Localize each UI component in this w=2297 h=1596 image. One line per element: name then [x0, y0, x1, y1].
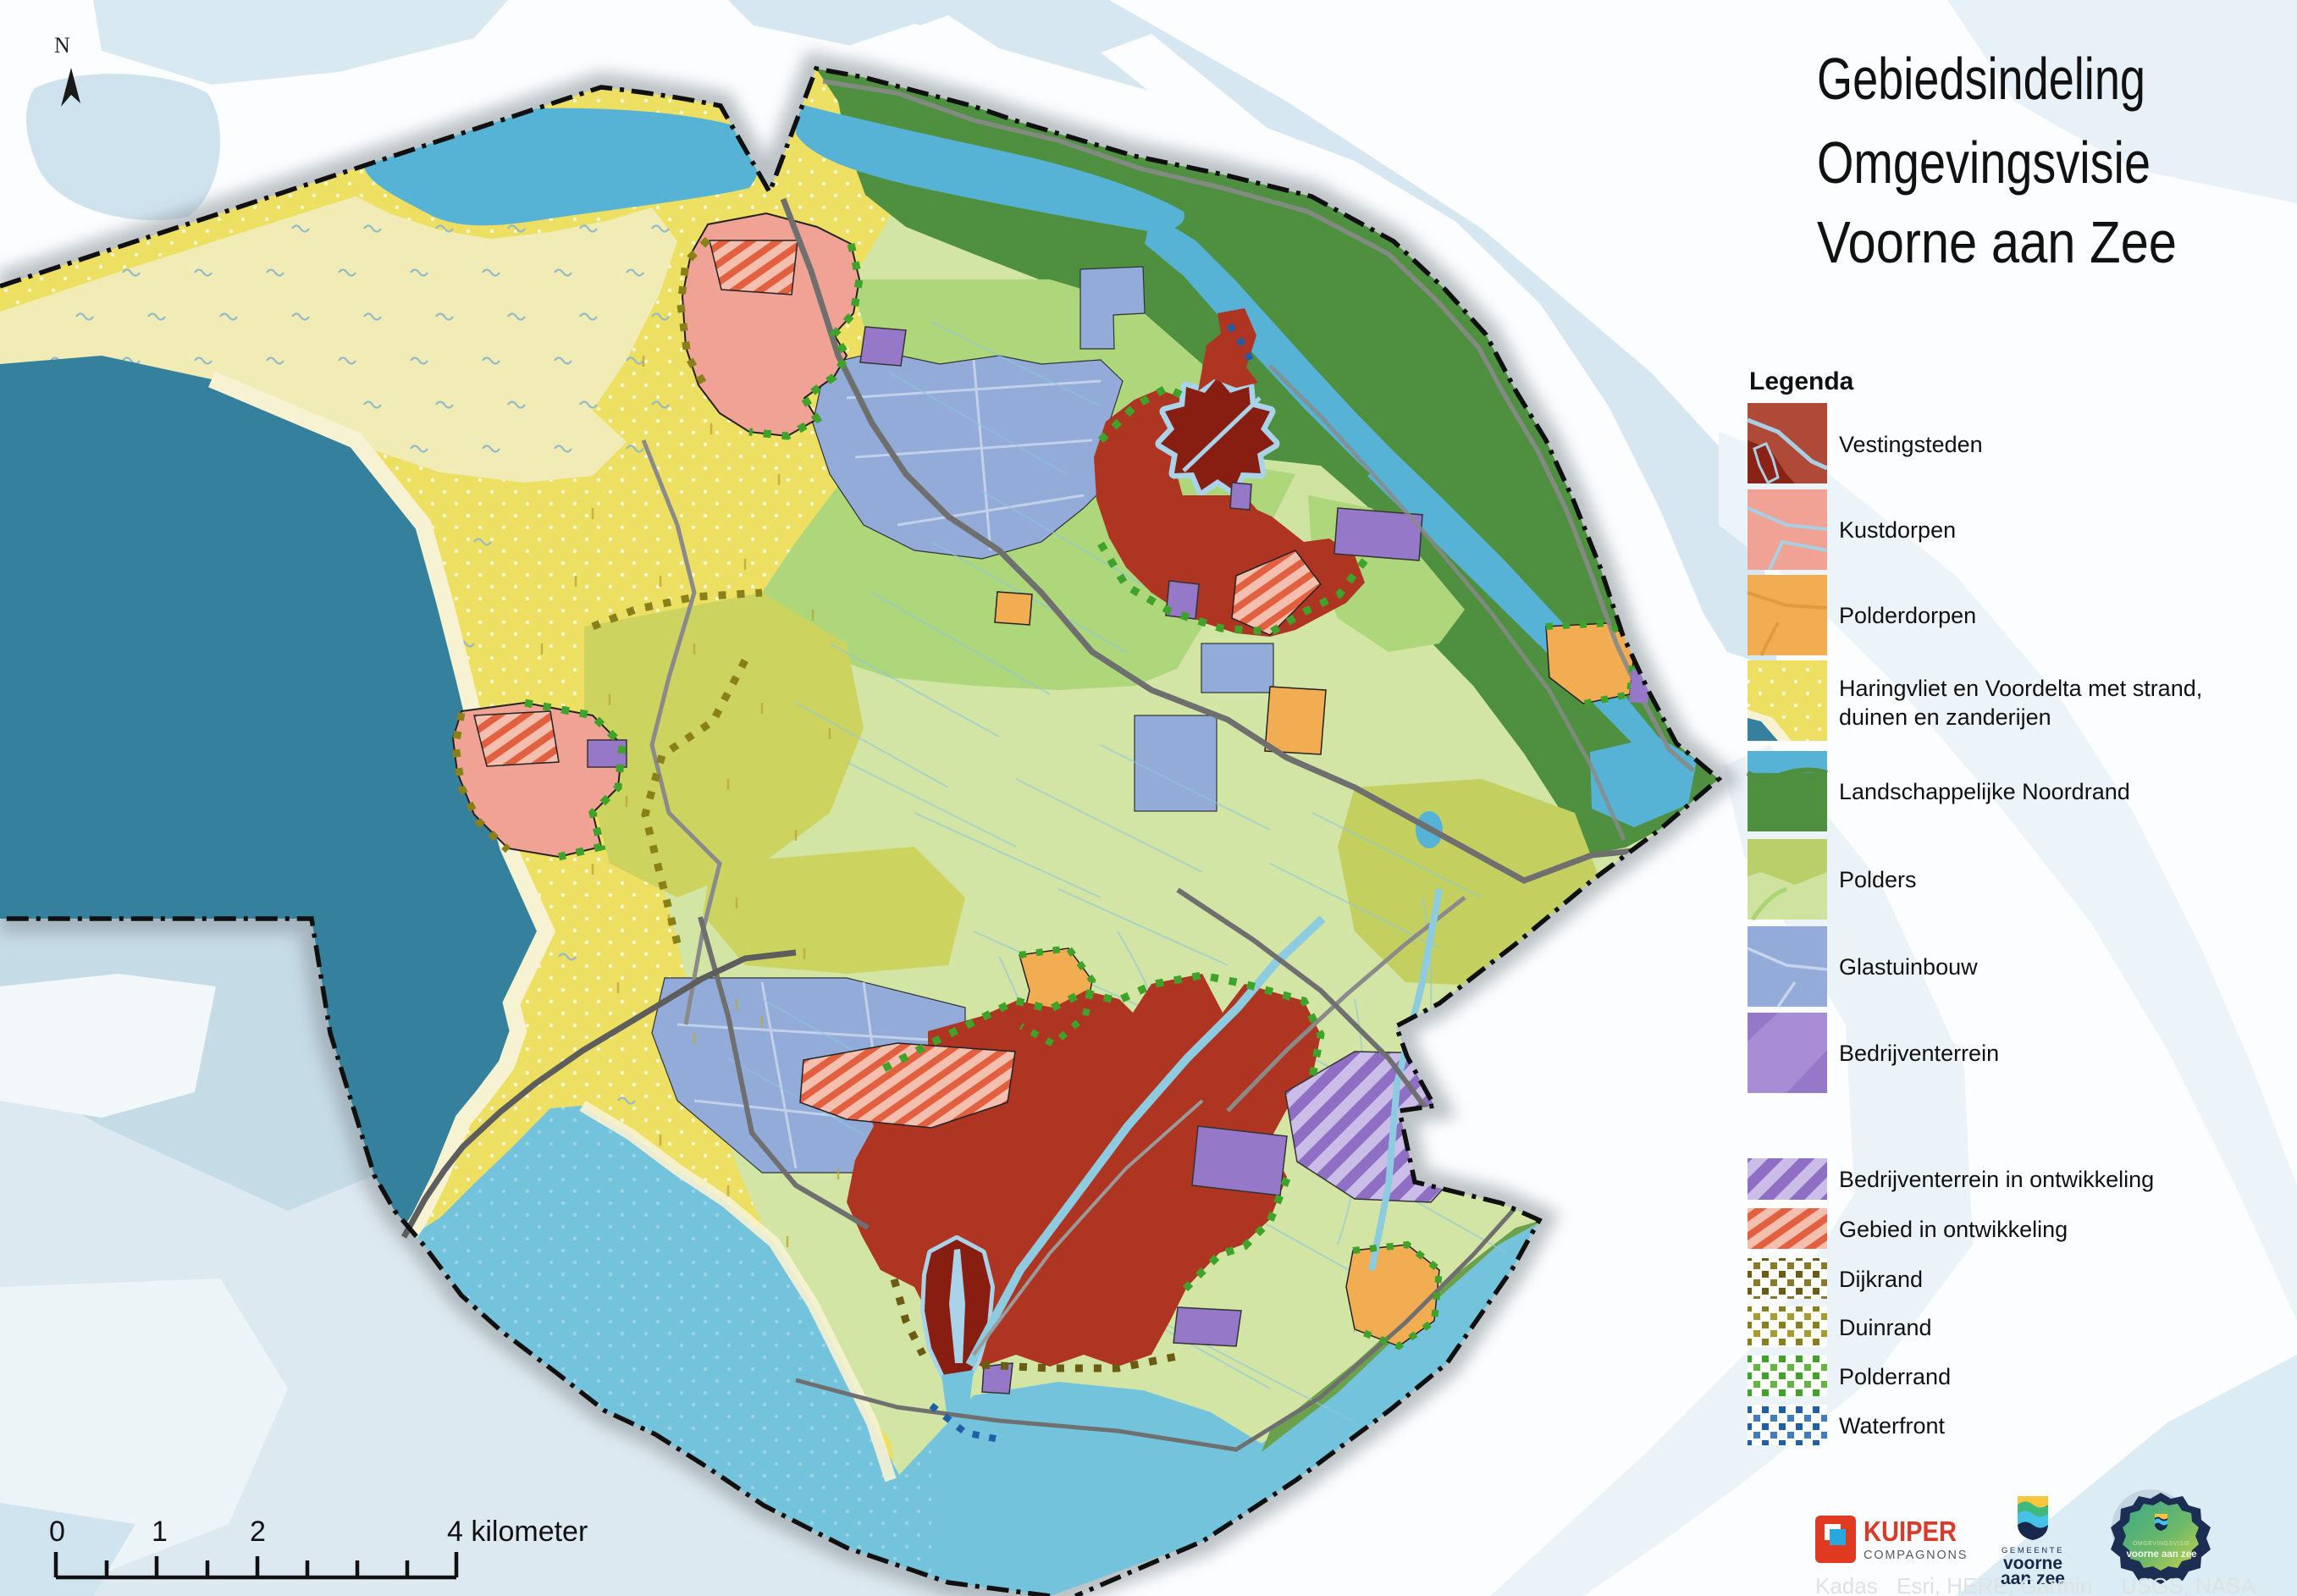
svg-text:1: 1 — [152, 1516, 168, 1548]
svg-text:USGS, NASA: USGS, NASA — [2121, 1573, 2256, 1596]
svg-text:Dijkrand: Dijkrand — [1839, 1267, 1923, 1292]
svg-text:2: 2 — [250, 1516, 266, 1548]
svg-text:0: 0 — [49, 1516, 65, 1548]
svg-text:Polderrand: Polderrand — [1839, 1364, 1951, 1389]
svg-text:Polderdorpen: Polderdorpen — [1839, 603, 1976, 628]
svg-text:Omgevingsvisie: Omgevingsvisie — [1817, 130, 2151, 196]
svg-text:Glastuinbouw: Glastuinbouw — [1839, 954, 1978, 980]
svg-text:Gebied in ontwikkeling: Gebied in ontwikkeling — [1839, 1217, 2068, 1242]
svg-text:Haringvliet en Voordelta met s: Haringvliet en Voordelta met strand, — [1839, 676, 2202, 701]
svg-text:Esri, HERE, Garmin: Esri, HERE, Garmin — [1897, 1573, 2092, 1596]
svg-text:Waterfront: Waterfront — [1839, 1413, 1946, 1439]
svg-text:Voorne aan Zee: Voorne aan Zee — [1817, 209, 2177, 275]
svg-text:Vestingsteden: Vestingsteden — [1839, 432, 1983, 457]
svg-text:Duinrand: Duinrand — [1839, 1315, 1932, 1340]
svg-text:Bedrijventerrein in ontwikkeli: Bedrijventerrein in ontwikkeling — [1839, 1167, 2154, 1192]
svg-text:Bedrijventerrein: Bedrijventerrein — [1839, 1041, 1999, 1066]
svg-text:Kustdorpen: Kustdorpen — [1839, 517, 1956, 543]
svg-text:Landschappelijke Noordrand: Landschappelijke Noordrand — [1839, 779, 2130, 804]
svg-text:Kadas: Kadas — [1815, 1573, 1878, 1596]
svg-text:OMGEVINGSVISIE: OMGEVINGSVISIE — [2133, 1541, 2190, 1547]
svg-text:Legenda: Legenda — [1749, 367, 1854, 395]
svg-text:Gebiedsindeling: Gebiedsindeling — [1817, 46, 2145, 112]
svg-text:4 kilometer: 4 kilometer — [447, 1516, 588, 1548]
svg-text:KUIPER: KUIPER — [1864, 1516, 1957, 1547]
svg-text:duinen en zanderijen: duinen en zanderijen — [1839, 704, 2051, 730]
svg-text:COMPAGNONS: COMPAGNONS — [1864, 1549, 1968, 1562]
svg-text:Polders: Polders — [1839, 867, 1917, 892]
svg-text:N: N — [54, 33, 70, 58]
svg-text:voorne aan zee: voorne aan zee — [2126, 1549, 2196, 1560]
